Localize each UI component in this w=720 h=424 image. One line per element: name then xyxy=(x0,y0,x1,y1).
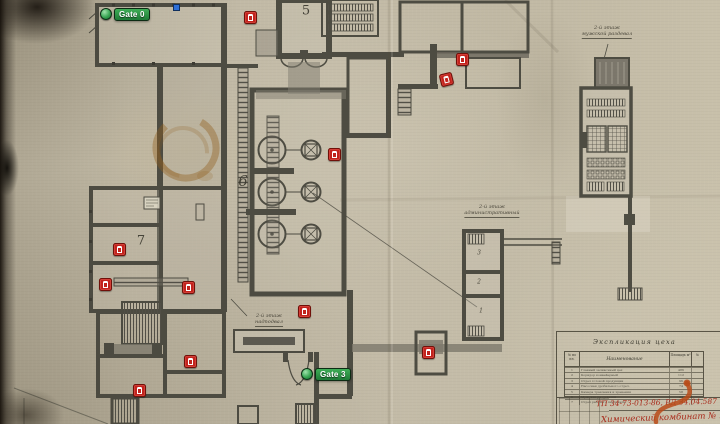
door-marker-icon[interactable] xyxy=(456,53,469,66)
gate-label: Gate 3 xyxy=(315,368,351,381)
door-marker-icon[interactable] xyxy=(244,11,257,24)
door-glyph xyxy=(186,284,191,291)
door-marker-icon[interactable] xyxy=(113,243,126,256)
door-glyph xyxy=(103,281,108,288)
gate-dot-icon xyxy=(100,8,112,20)
door-marker-icon[interactable] xyxy=(182,281,195,294)
door-marker-icon[interactable] xyxy=(133,384,146,397)
gate-0[interactable]: Gate 0 xyxy=(100,8,150,21)
door-marker-icon[interactable] xyxy=(328,148,341,161)
blue-marker-icon[interactable] xyxy=(173,4,180,11)
door-glyph xyxy=(248,14,253,21)
door-marker-icon[interactable] xyxy=(438,71,454,87)
scan-edge-shadow xyxy=(0,0,16,424)
plan-annotation: 2-й этажадминистративный xyxy=(464,205,519,218)
door-glyph xyxy=(332,151,337,158)
map-overlays: Gate 0Gate 35673212-й этажмужской раздев… xyxy=(0,0,720,424)
door-glyph xyxy=(426,349,431,356)
room-number-label: 1 xyxy=(479,308,483,315)
plan-annotation: 2-й этажнадподвал xyxy=(255,314,283,327)
door-marker-icon[interactable] xyxy=(422,346,435,359)
door-glyph xyxy=(460,56,465,63)
room-number-label: 6 xyxy=(238,172,248,190)
blueprint-map-screen: Экспликация цеха № по пл. Наименование П… xyxy=(0,0,720,424)
room-number-label: 3 xyxy=(477,250,481,257)
door-marker-icon[interactable] xyxy=(99,278,112,291)
room-number-label: 7 xyxy=(137,234,145,249)
plan-annotation: 2-й этажмужской раздевал xyxy=(582,26,632,39)
annotation-line: мужской раздевал xyxy=(582,32,632,39)
door-marker-icon[interactable] xyxy=(184,355,197,368)
annotation-line: надподвал xyxy=(255,320,283,327)
gate-label: Gate 0 xyxy=(114,8,150,21)
gate-3[interactable]: Gate 3 xyxy=(301,368,351,381)
door-glyph xyxy=(302,308,307,315)
door-glyph xyxy=(188,358,193,365)
door-marker-icon[interactable] xyxy=(298,305,311,318)
gate-dot-icon xyxy=(301,368,313,380)
door-glyph xyxy=(137,387,142,394)
room-number-label: 2 xyxy=(477,279,481,286)
door-glyph xyxy=(443,75,450,83)
room-number-label: 5 xyxy=(302,4,310,19)
annotation-line: административный xyxy=(464,211,519,218)
door-glyph xyxy=(117,246,122,253)
